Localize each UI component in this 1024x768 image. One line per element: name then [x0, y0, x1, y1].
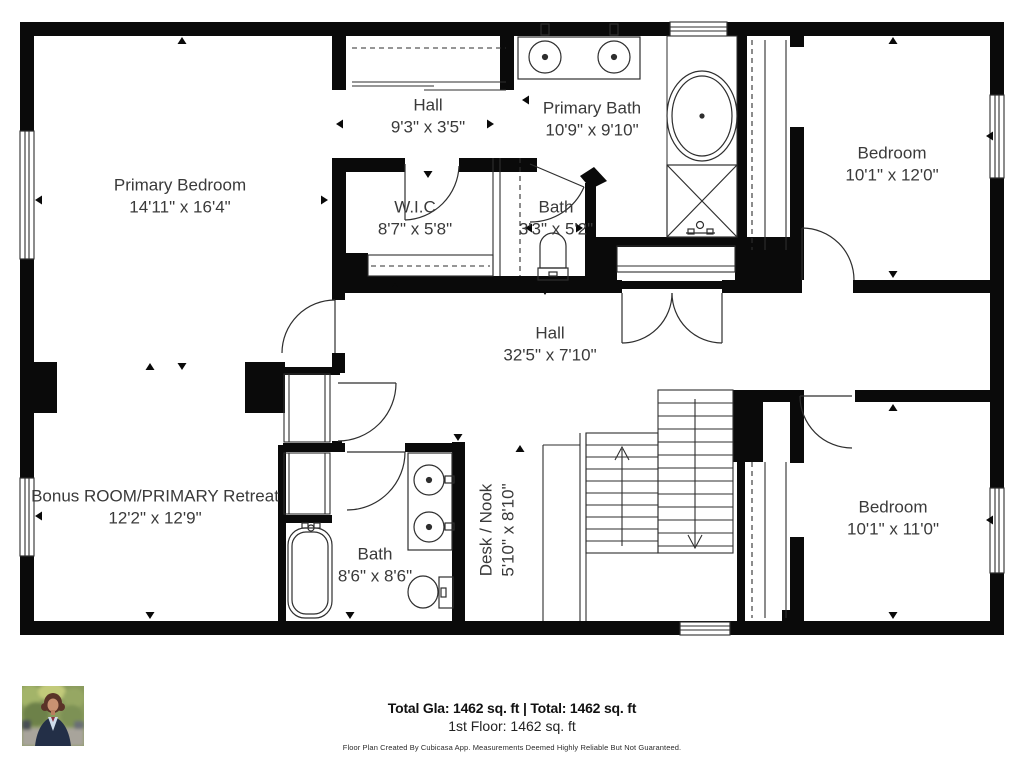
- closet-bedroom-bottom: [752, 462, 786, 618]
- bathtub-lower: [288, 523, 332, 618]
- window-bedroom-bottom: [990, 488, 1004, 573]
- room-label-wic: W.I.C 8'7" x 5'8": [378, 196, 452, 240]
- room-dims: 3'3" x 5'2": [519, 218, 593, 240]
- hall-closet: [352, 48, 506, 90]
- room-name: Hall: [503, 322, 596, 344]
- room-dims: 5'10" x 8'10": [497, 483, 519, 576]
- room-dims: 8'7" x 5'8": [378, 218, 452, 240]
- stairs-down-arrow: [688, 399, 702, 548]
- door-bedroom-bottom: [800, 396, 852, 448]
- hall-cabinet: [617, 246, 735, 272]
- toilet-small-bath: [538, 233, 568, 280]
- room-label-primary-bath: Primary Bath 10'9" x 9'10": [543, 97, 641, 141]
- window-primary-bedroom: [20, 131, 34, 259]
- vanity-lower: [408, 453, 454, 550]
- room-name: Bonus ROOM/PRIMARY Retreat: [31, 485, 279, 507]
- room-dims: 10'1" x 12'0": [845, 164, 938, 186]
- room-label-hall-main: Hall 32'5" x 7'10": [503, 322, 596, 366]
- totals-block: Total Gla: 1462 sq. ft | Total: 1462 sq.…: [0, 700, 1024, 734]
- room-dims: 14'11" x 16'4": [114, 196, 246, 218]
- footer: Total Gla: 1462 sq. ft | Total: 1462 sq.…: [0, 678, 1024, 768]
- room-name: Bath: [338, 543, 412, 565]
- window-primary-bath: [670, 22, 727, 36]
- room-label-hall-top: Hall 9'3" x 3'5": [391, 94, 465, 138]
- room-name: Bedroom: [845, 142, 938, 164]
- room-label-bath-lower: Bath 8'6" x 8'6": [338, 543, 412, 587]
- room-name: Hall: [391, 94, 465, 116]
- room-label-desk-nook: Desk / Nook 5'10" x 8'10": [475, 483, 519, 576]
- room-dims: 8'6" x 8'6": [338, 565, 412, 587]
- closet-bedroom-top: [752, 40, 786, 250]
- door-bath-lower: [347, 452, 405, 510]
- floor-plan-page: Primary Bedroom 14'11" x 16'4" Hall 9'3"…: [0, 0, 1024, 768]
- room-label-bedroom-bottom: Bedroom 10'1" x 11'0": [847, 496, 939, 540]
- room-label-bath-small: Bath 3'3" x 5'2": [519, 196, 593, 240]
- room-label-primary-bedroom: Primary Bedroom 14'11" x 16'4": [114, 174, 246, 218]
- room-name: Bath: [519, 196, 593, 218]
- primary-bathtub: [667, 36, 737, 165]
- door-linen-closet: [338, 383, 396, 441]
- room-label-bonus-room: Bonus ROOM/PRIMARY Retreat 12'2" x 12'9": [31, 485, 279, 529]
- total-gla-line: Total Gla: 1462 sq. ft | Total: 1462 sq.…: [0, 700, 1024, 716]
- door-bedroom-top: [802, 228, 854, 280]
- room-name: Primary Bath: [543, 97, 641, 119]
- room-label-bedroom-top: Bedroom 10'1" x 12'0": [845, 142, 938, 186]
- floor-plan-drawing: [0, 0, 1024, 768]
- first-floor-line: 1st Floor: 1462 sq. ft: [0, 718, 1024, 734]
- stairs-up-arrow: [615, 447, 629, 546]
- room-dims: 10'1" x 11'0": [847, 518, 939, 540]
- room-name: Desk / Nook: [475, 483, 497, 576]
- toilet-lower: [408, 576, 453, 608]
- staircase: [543, 390, 733, 621]
- disclaimer-text: Floor Plan Created By Cubicasa App. Meas…: [0, 743, 1024, 752]
- desk-nook-boundary: [543, 445, 580, 621]
- window-stair-landing: [680, 622, 730, 635]
- room-name: Primary Bedroom: [114, 174, 246, 196]
- shower: [667, 165, 737, 237]
- room-name: W.I.C: [378, 196, 452, 218]
- room-dims: 10'9" x 9'10": [543, 119, 641, 141]
- room-dims: 32'5" x 7'10": [503, 344, 596, 366]
- room-dims: 9'3" x 3'5": [391, 116, 465, 138]
- room-name: Bedroom: [847, 496, 939, 518]
- room-dims: 12'2" x 12'9": [31, 507, 279, 529]
- door-primary-bedroom: [282, 300, 335, 353]
- double-door-hall: [622, 293, 722, 343]
